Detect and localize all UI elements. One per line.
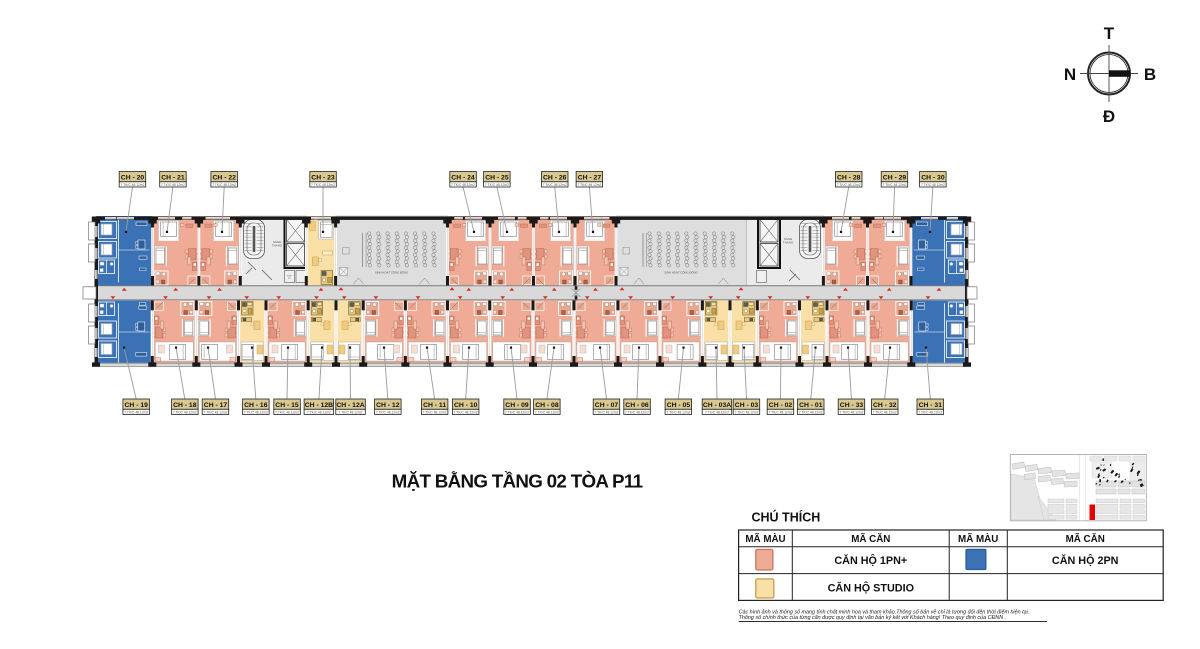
svg-text:SINH HOẠT CỘNG ĐỒNG: SINH HOẠT CỘNG ĐỒNG [375, 269, 409, 274]
svg-text:7 TK/C 48.12m2: 7 TK/C 48.12m2 [535, 410, 559, 414]
svg-text:CH - 11: CH - 11 [423, 402, 446, 409]
svg-text:7 TK/C 48.12m2: 7 TK/C 48.12m2 [873, 410, 897, 414]
svg-text:MẶT BẰNG TẦNG 02 TÒA P11: MẶT BẰNG TẦNG 02 TÒA P11 [392, 471, 643, 492]
svg-text:CH - 09: CH - 09 [505, 402, 529, 409]
svg-text:CH - 32: CH - 32 [873, 402, 897, 409]
svg-text:CH - 26: CH - 26 [543, 174, 567, 181]
svg-text:7 TK/C 48.12m2: 7 TK/C 48.12m2 [840, 410, 864, 414]
svg-text:MÃ MÀU: MÃ MÀU [958, 533, 998, 545]
svg-text:7 TK/C 48.12m2: 7 TK/C 48.12m2 [577, 183, 601, 187]
svg-text:CH - 30: CH - 30 [921, 174, 945, 181]
svg-text:7 TK/C 48.12m2: 7 TK/C 48.12m2 [735, 410, 759, 414]
svg-text:7 TK/C 48.12m2: 7 TK/C 48.12m2 [376, 410, 400, 414]
svg-text:7 TK/C 48.12m2: 7 TK/C 48.12m2 [339, 410, 363, 414]
svg-text:7 TK/C 48.12m2: 7 TK/C 48.12m2 [204, 410, 228, 414]
svg-text:7 TK/C 48.12m2: 7 TK/C 48.12m2 [625, 410, 649, 414]
svg-text:7 TK/C 48.12m2: 7 TK/C 48.12m2 [543, 183, 567, 187]
svg-text:CH - 23: CH - 23 [311, 174, 335, 181]
svg-text:CH - 21: CH - 21 [161, 174, 185, 181]
svg-text:CH - 31: CH - 31 [919, 402, 943, 409]
svg-text:CĂN HỘ STUDIO: CĂN HỘ STUDIO [828, 582, 914, 595]
svg-text:CH - 18: CH - 18 [173, 402, 197, 409]
svg-text:7 TK/C 48.12m2: 7 TK/C 48.12m2 [311, 183, 335, 187]
svg-text:CH - 24: CH - 24 [451, 174, 475, 181]
svg-text:CH - 01: CH - 01 [799, 402, 823, 409]
svg-text:CH - 03: CH - 03 [735, 402, 759, 409]
svg-text:MÃ CĂN: MÃ CĂN [851, 534, 890, 545]
svg-text:CH - 28: CH - 28 [837, 174, 861, 181]
svg-text:CH - 15: CH - 15 [275, 402, 299, 409]
svg-text:THANG: THANG [272, 244, 283, 248]
svg-text:7 TK/C 48.12m2: 7 TK/C 48.12m2 [454, 410, 478, 414]
svg-text:CH - 05: CH - 05 [667, 402, 691, 409]
svg-text:7 TK/C 48.12m2: 7 TK/C 48.12m2 [124, 410, 148, 414]
svg-text:7 TK/C 48.12m2: 7 TK/C 48.12m2 [173, 410, 197, 414]
svg-text:7 TK/C 48.12m2: 7 TK/C 48.12m2 [918, 410, 942, 414]
svg-text:7 TK/C 48.12m2: 7 TK/C 48.12m2 [837, 183, 861, 187]
svg-text:7 TK/C 48.12m2: 7 TK/C 48.12m2 [161, 183, 185, 187]
svg-text:7 TK/C 48.12m2: 7 TK/C 48.12m2 [769, 410, 793, 414]
svg-text:T: T [1104, 24, 1115, 43]
svg-text:CH - 17: CH - 17 [204, 402, 228, 409]
svg-text:CH - 08: CH - 08 [535, 402, 559, 409]
svg-text:7 TK/C 48.12m2: 7 TK/C 48.12m2 [423, 410, 447, 414]
svg-text:7 TK/C 48.12m2: 7 TK/C 48.12m2 [212, 183, 236, 187]
svg-text:CH - 19: CH - 19 [124, 402, 148, 409]
svg-text:7 TK/C 48.12m2: 7 TK/C 48.12m2 [883, 183, 907, 187]
svg-text:7 TK/C 48.12m2: 7 TK/C 48.12m2 [505, 410, 529, 414]
svg-text:7 TK/C 48.12m2: 7 TK/C 48.12m2 [485, 183, 509, 187]
svg-text:CĂN HỘ 1PN+: CĂN HỘ 1PN+ [834, 554, 907, 567]
svg-text:7 TK/C 48.12m2: 7 TK/C 48.12m2 [307, 410, 331, 414]
svg-text:CH - 27: CH - 27 [578, 174, 602, 181]
svg-text:CH - 03A: CH - 03A [703, 402, 731, 409]
svg-text:7 TK/C 48.12m2: 7 TK/C 48.12m2 [275, 410, 299, 414]
svg-text:Thông số chính thức của từng c: Thông số chính thức của từng căn được qu… [739, 614, 1007, 621]
svg-text:CH - 20: CH - 20 [121, 174, 145, 181]
svg-text:MÃ CĂN: MÃ CĂN [1066, 534, 1105, 545]
svg-text:B: B [1144, 65, 1156, 84]
svg-text:CH - 12: CH - 12 [376, 402, 400, 409]
svg-text:CH - 25: CH - 25 [485, 174, 509, 181]
svg-text:SINH HOẠT CỘNG ĐỒNG: SINH HOẠT CỘNG ĐỒNG [664, 269, 698, 274]
svg-text:CH - 10: CH - 10 [454, 402, 478, 409]
svg-text:7 TK/C 48.12m2: 7 TK/C 48.12m2 [595, 410, 619, 414]
svg-text:7 TK/C 48.12m2: 7 TK/C 48.12m2 [244, 410, 268, 414]
svg-text:CH - 33: CH - 33 [840, 402, 864, 409]
svg-text:CH - 29: CH - 29 [883, 174, 907, 181]
svg-text:CH - 06: CH - 06 [625, 402, 649, 409]
svg-text:7 TK/C 48.12m2: 7 TK/C 48.12m2 [799, 410, 823, 414]
svg-text:CH - 16: CH - 16 [244, 402, 268, 409]
svg-text:CH - 07: CH - 07 [595, 402, 619, 409]
svg-text:7 TK/C 48.12m2: 7 TK/C 48.12m2 [921, 183, 945, 187]
svg-text:CH - 22: CH - 22 [212, 174, 236, 181]
svg-text:CH - 12A: CH - 12A [336, 402, 364, 409]
svg-text:HỘP: HỘP [287, 275, 292, 278]
svg-text:N: N [1064, 65, 1076, 84]
svg-text:CH - 12B: CH - 12B [305, 402, 333, 409]
svg-text:7 TK/C 48.12m2: 7 TK/C 48.12m2 [705, 410, 729, 414]
svg-text:CĂN HỘ 2PN: CĂN HỘ 2PN [1052, 554, 1119, 567]
svg-text:7 TK/C 48.12m2: 7 TK/C 48.12m2 [451, 183, 475, 187]
svg-text:7 TK/C 48.12m2: 7 TK/C 48.12m2 [121, 183, 145, 187]
svg-text:7 TK/C 48.12m2: 7 TK/C 48.12m2 [666, 410, 690, 414]
svg-text:CHÚ THÍCH: CHÚ THÍCH [752, 510, 821, 525]
svg-text:MÃ MÀU: MÃ MÀU [745, 533, 785, 545]
svg-text:THANG: THANG [783, 241, 794, 245]
svg-text:CH - 02: CH - 02 [769, 402, 793, 409]
svg-text:Đ: Đ [1103, 107, 1115, 126]
